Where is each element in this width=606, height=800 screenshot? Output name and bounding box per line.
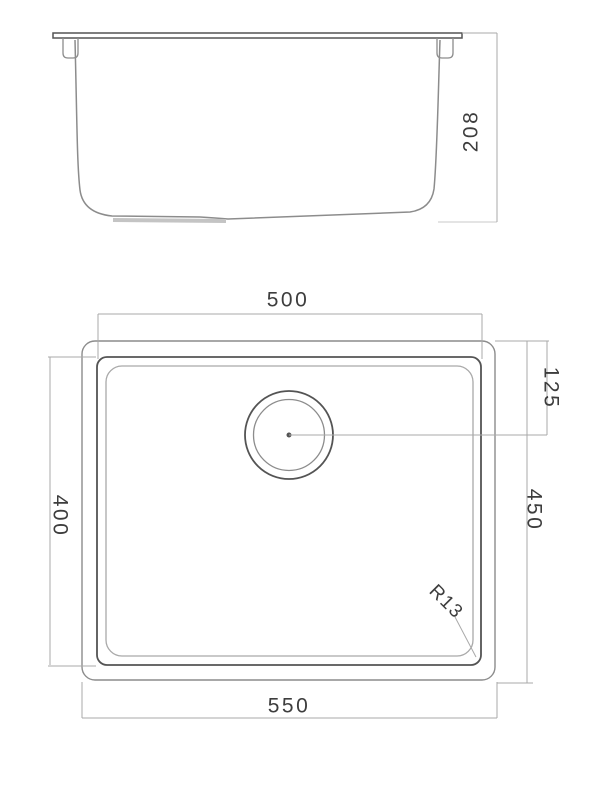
side-rim-flange: [53, 33, 462, 38]
dimension-bowl-depth: 400: [48, 357, 96, 666]
dim-label-drain-offset: 125: [540, 367, 563, 410]
side-bowl-body-outline: [75, 40, 440, 219]
plan-bowl-bottom-edge: [106, 366, 473, 656]
plan-drain: [245, 391, 547, 479]
dim-label-overall-width: 550: [268, 695, 311, 718]
side-drain-boss: [113, 220, 226, 221]
dimension-drain-offset: 125: [540, 341, 563, 435]
sink-drawing-canvas: 208 500: [0, 0, 606, 800]
plan-bowl-opening: [97, 357, 481, 665]
side-elevation-view: 208: [53, 33, 497, 222]
dim-label-corner-radius: R13: [425, 581, 468, 624]
dimension-side-height: 208: [438, 33, 497, 222]
dimension-bowl-width: 500: [98, 289, 482, 360]
dim-label-overall-depth: 450: [523, 489, 546, 532]
dim-label-side-height: 208: [460, 110, 483, 153]
dimension-overall-width: 550: [82, 682, 497, 718]
technical-drawing-page: 208 500: [0, 0, 606, 800]
dim-label-bowl-depth: 400: [49, 495, 72, 538]
plan-view: 500 400 450 125: [48, 289, 563, 719]
dim-label-bowl-width: 500: [267, 289, 310, 312]
corner-radius-callout: R13: [425, 581, 476, 657]
